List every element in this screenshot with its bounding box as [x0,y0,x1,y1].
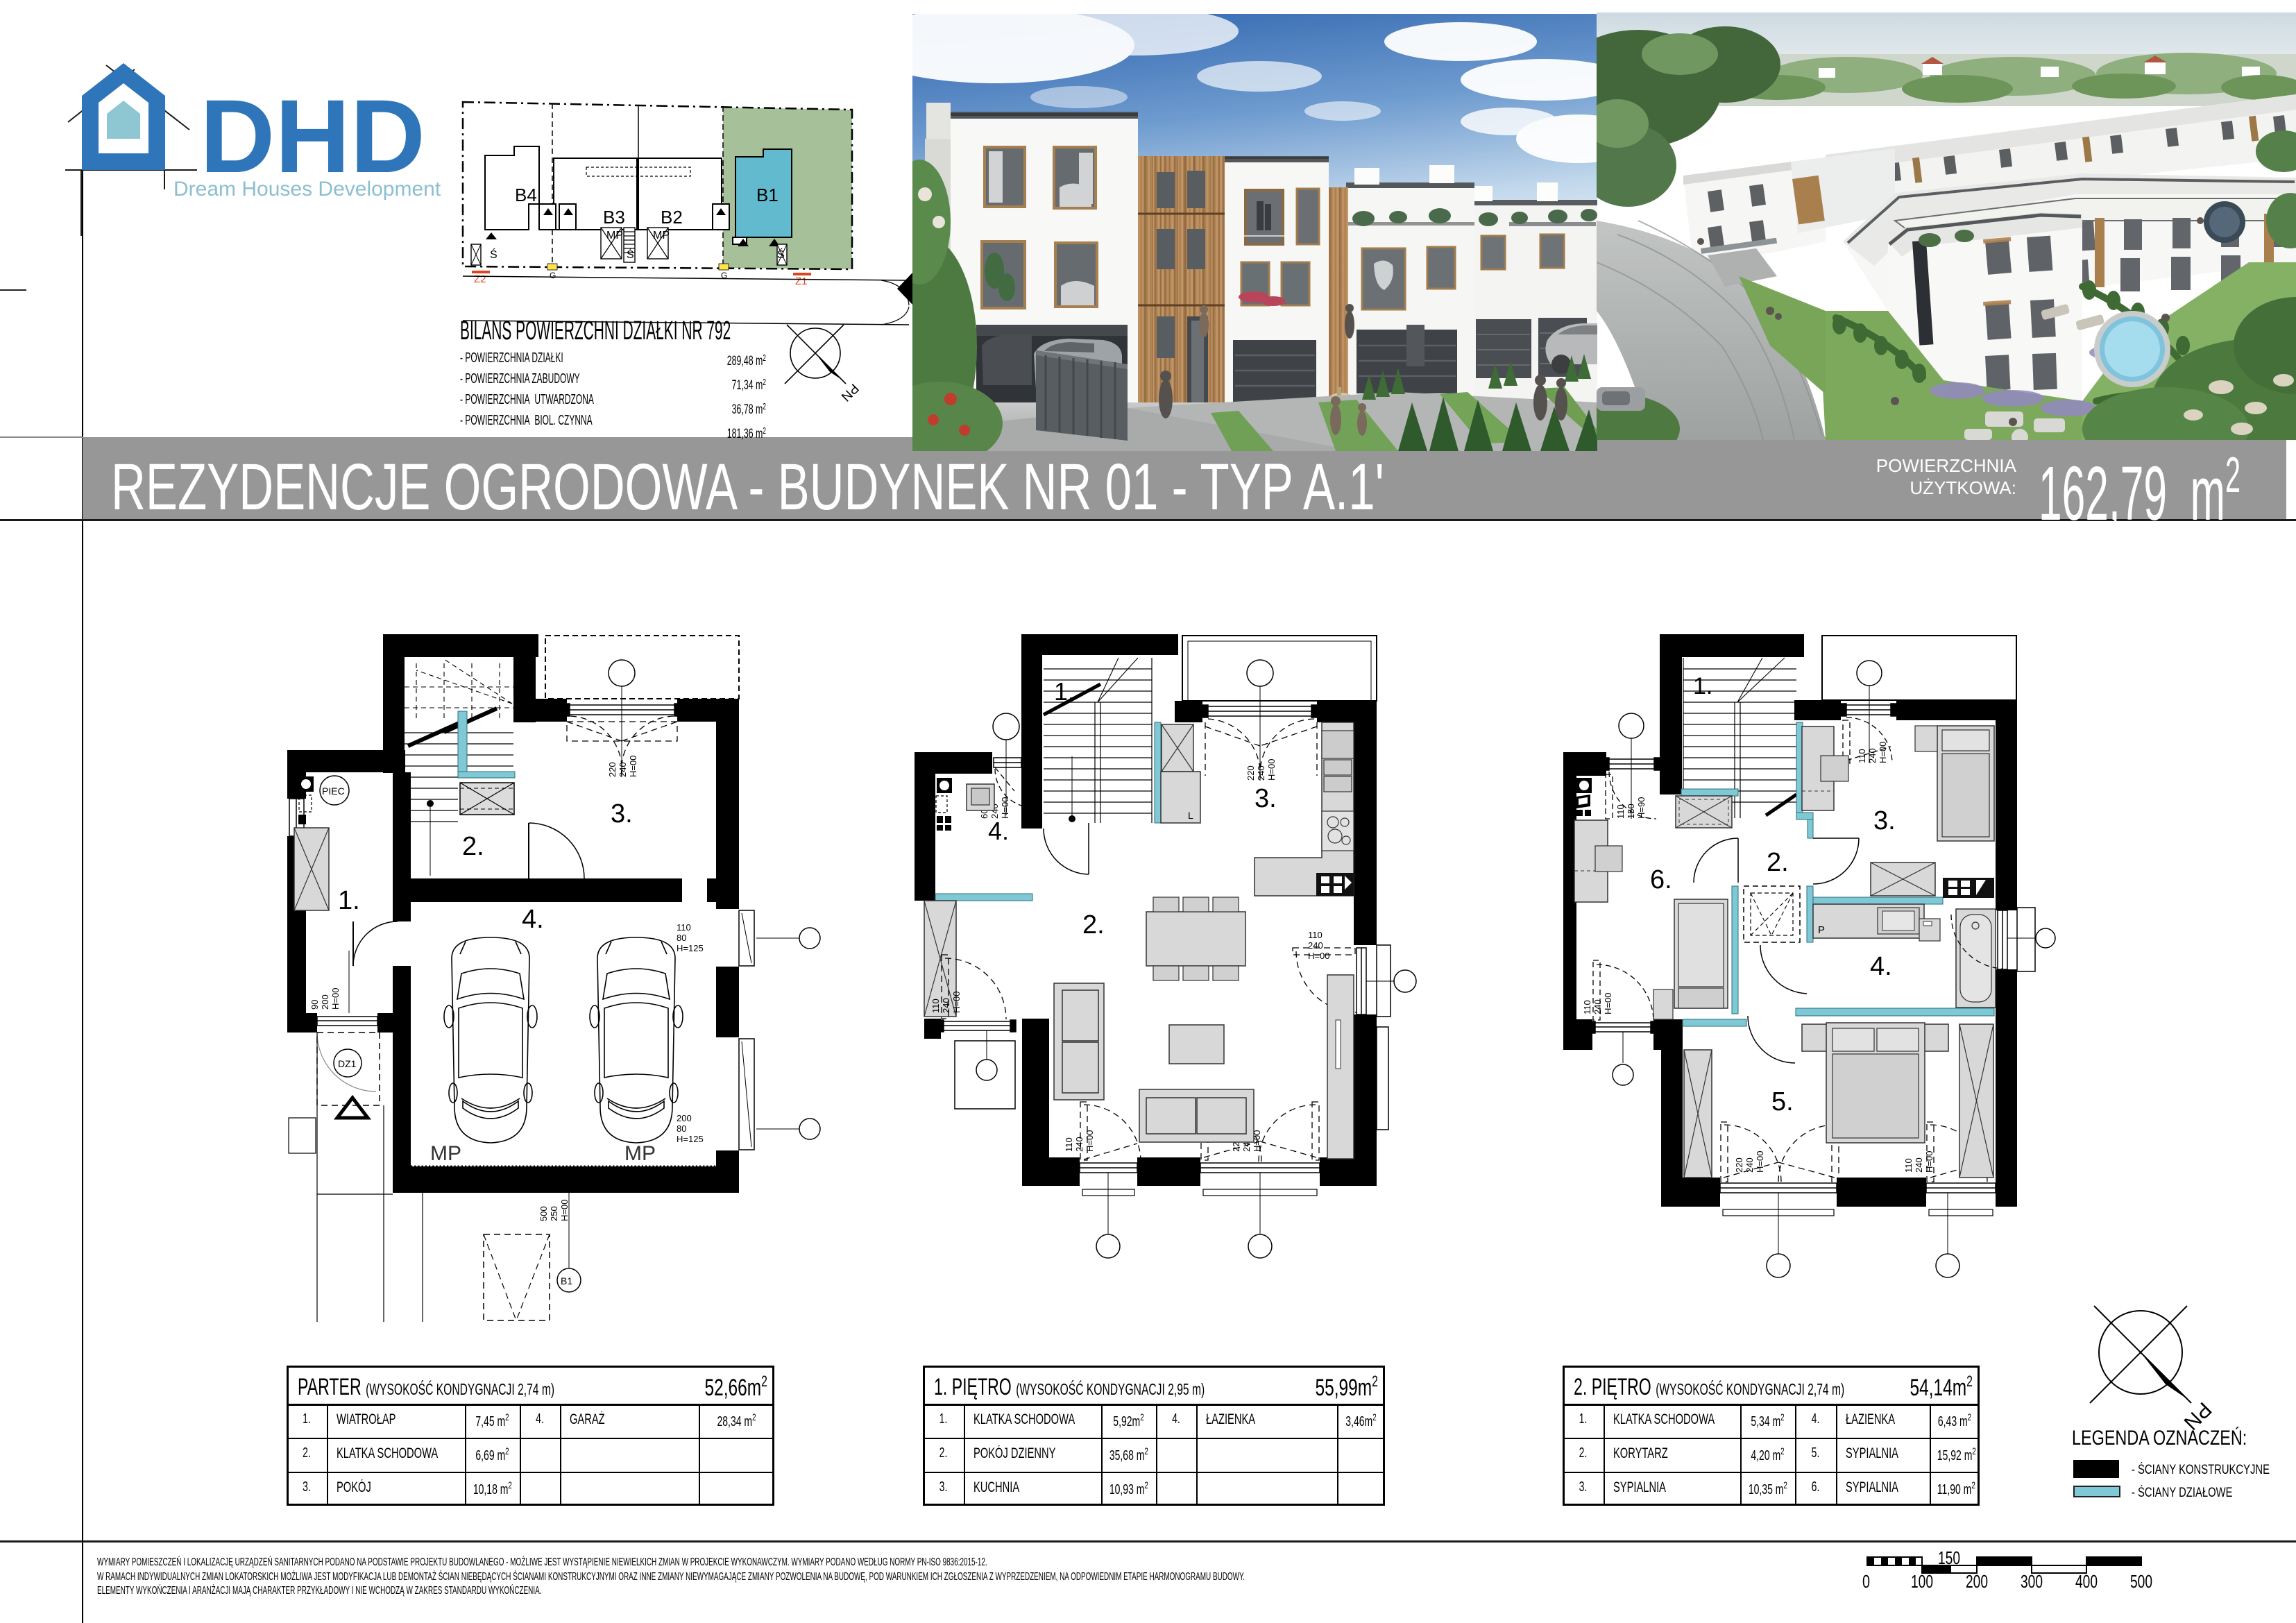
svg-text:H=00: H=00 [1755,1151,1765,1173]
svg-text:240: 240 [1914,1157,1924,1173]
svg-text:110: 110 [1903,1158,1914,1173]
svg-text:L: L [1188,810,1193,821]
svg-text:H=00: H=00 [1603,993,1613,1014]
svg-text:110: 110 [1582,1000,1592,1014]
svg-text:G: G [550,271,556,280]
svg-text:1.: 1. [1054,677,1075,706]
svg-text:240: 240 [1592,999,1603,1014]
svg-text:500: 500 [2130,1571,2152,1592]
svg-text:250: 250 [549,1206,559,1221]
svg-text:100: 100 [1911,1571,1933,1592]
svg-text:3.: 3. [1873,806,1896,835]
svg-text:B1: B1 [561,1275,572,1286]
svg-text:PIEC: PIEC [322,785,345,797]
svg-text:Ś: Ś [627,248,634,261]
svg-text:P: P [1818,924,1825,936]
svg-text:Z1: Z1 [795,275,808,287]
svg-text:H=00: H=00 [1878,742,1888,763]
svg-text:H=125: H=125 [677,943,704,953]
svg-text:500: 500 [538,1206,549,1221]
svg-text:5.: 5. [1771,1087,1794,1116]
svg-text:110: 110 [677,922,691,933]
svg-text:H=125: H=125 [677,1134,704,1144]
svg-text:B4: B4 [515,185,537,205]
svg-text:200: 200 [677,1113,692,1123]
svg-text:Ś: Ś [490,248,498,261]
svg-text:0: 0 [1862,1571,1870,1592]
svg-text:4.: 4. [1870,952,1892,981]
svg-text:240: 240 [1744,1157,1755,1173]
svg-text:240: 240 [1867,748,1878,763]
svg-text:B1: B1 [756,185,779,205]
svg-text:H=00: H=00 [330,988,341,1010]
svg-text:110: 110 [1857,749,1867,763]
svg-text:300: 300 [2021,1571,2043,1592]
svg-text:220: 220 [1245,765,1256,781]
svg-text:2.: 2. [462,832,484,861]
svg-text:PN: PN [2179,1397,2216,1434]
svg-text:DZ1: DZ1 [338,1058,357,1069]
svg-text:MP: MP [653,230,670,241]
svg-text:H=00: H=00 [951,992,962,1013]
svg-text:B2: B2 [661,207,683,228]
svg-text:3.: 3. [611,799,633,829]
svg-text:MP: MP [624,1142,656,1165]
svg-text:Ś: Ś [777,248,785,261]
svg-text:Z2: Z2 [474,273,486,285]
svg-text:240: 240 [618,762,628,777]
svg-text:110: 110 [1308,930,1323,940]
svg-text:H=00: H=00 [1000,797,1010,819]
svg-text:H=90: H=90 [1636,797,1647,819]
svg-text:B3: B3 [603,207,625,228]
svg-text:DHD: DHD [200,78,425,194]
svg-text:220: 220 [1734,1157,1744,1173]
svg-text:H=00: H=00 [1266,759,1277,781]
svg-text:4.: 4. [522,905,544,934]
svg-text:110: 110 [1064,1137,1074,1152]
svg-text:2.: 2. [1082,910,1105,940]
svg-text:110: 110 [1615,804,1626,819]
svg-text:2.: 2. [1767,848,1789,877]
svg-text:80: 80 [677,1123,686,1134]
svg-text:150: 150 [1938,1547,1960,1568]
svg-text:240: 240 [1256,765,1266,781]
svg-text:110: 110 [930,999,941,1013]
svg-text:H=00: H=00 [628,756,638,777]
svg-text:1.: 1. [338,886,360,915]
svg-text:150: 150 [1626,804,1636,819]
svg-text:400: 400 [2075,1571,2098,1592]
svg-text:220: 220 [607,762,618,777]
svg-text:H=00: H=00 [559,1200,570,1221]
svg-text:MP: MP [430,1142,461,1165]
svg-text:90: 90 [309,1000,320,1010]
svg-text:MP: MP [606,230,623,241]
svg-text:H=00: H=00 [1924,1151,1934,1173]
svg-text:240: 240 [1308,940,1323,951]
svg-text:H=00: H=00 [1085,1130,1095,1152]
svg-text:4.: 4. [988,817,1009,845]
svg-text:240: 240 [941,998,951,1013]
svg-text:80: 80 [677,933,686,943]
svg-text:PN: PN [838,380,862,404]
svg-text:6.: 6. [1650,865,1672,894]
svg-text:H=00: H=00 [1308,951,1329,961]
svg-text:Dream Houses Development: Dream Houses Development [173,178,441,201]
svg-text:240: 240 [1074,1137,1085,1152]
svg-text:1.: 1. [1693,673,1712,699]
svg-text:3.: 3. [1255,784,1277,813]
svg-text:200: 200 [1966,1571,1988,1592]
svg-text:200: 200 [320,994,330,1010]
